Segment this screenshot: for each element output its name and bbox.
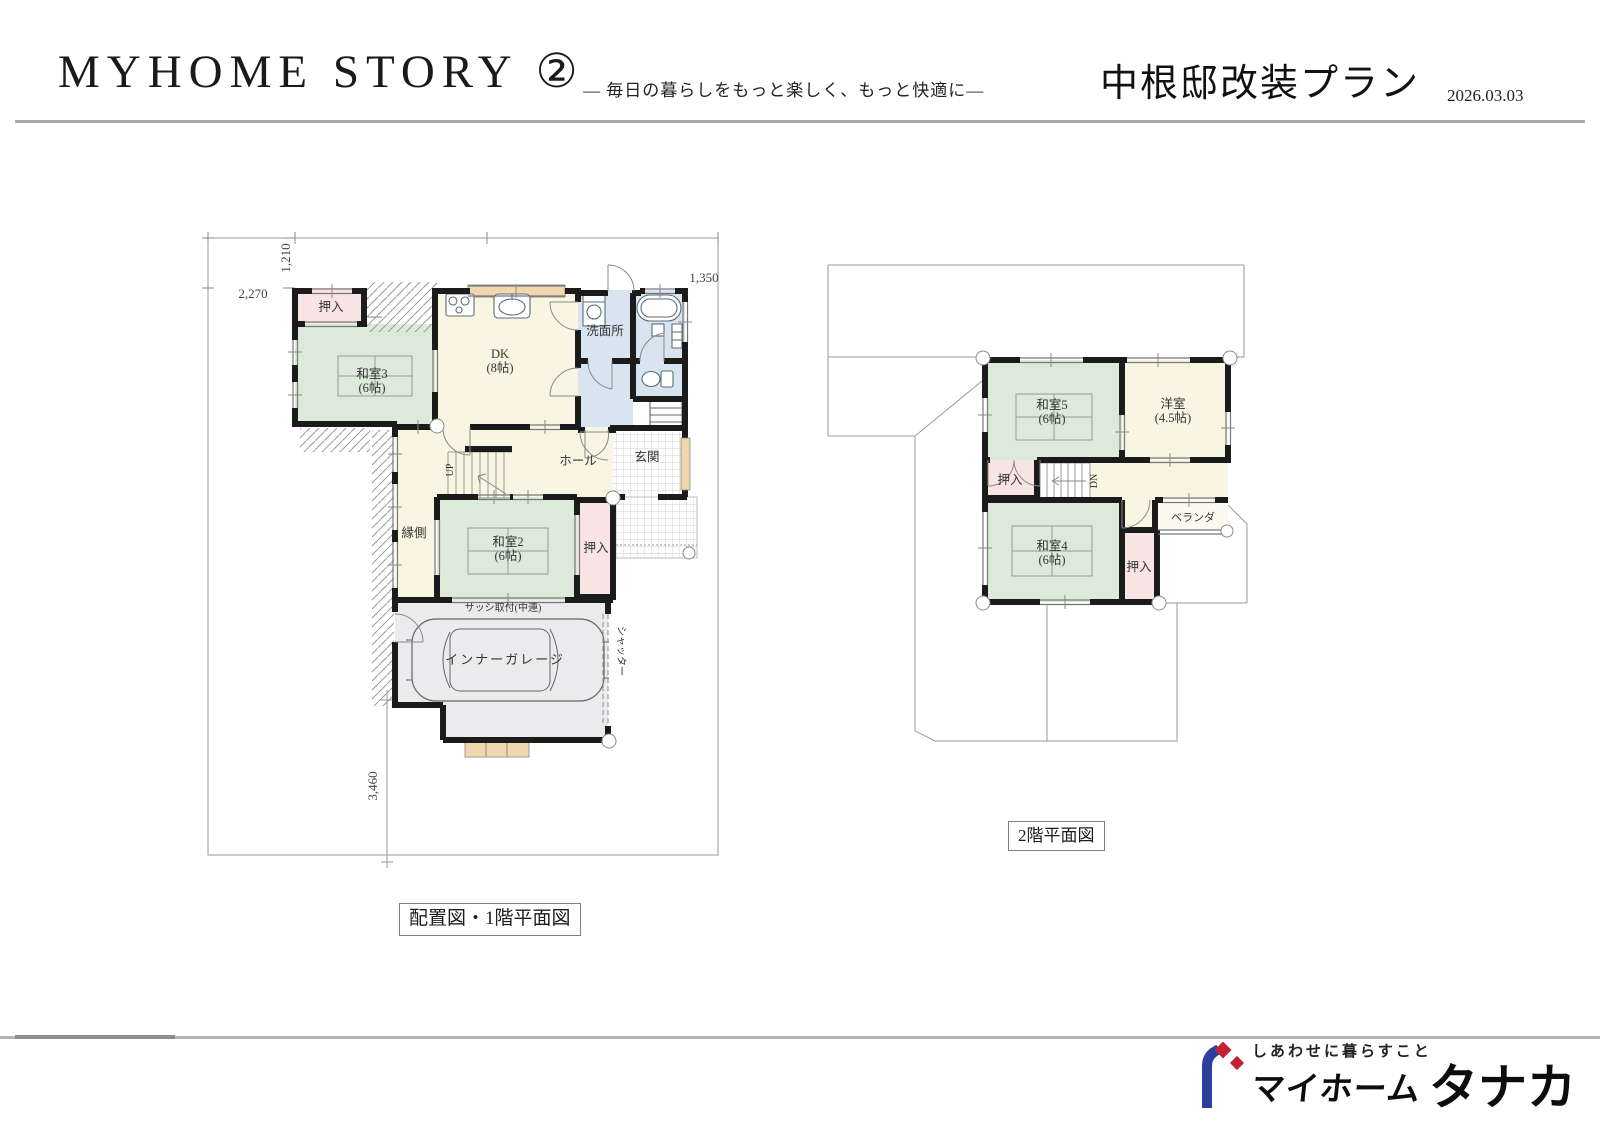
logo-red-diamond-1 (1215, 1042, 1232, 1058)
label-yoshitsu-size: (4.5帖) (1155, 410, 1191, 425)
label-genkan: 玄関 (634, 449, 659, 464)
brand-myhome: マイホーム (1249, 1062, 1423, 1110)
company-logo: しあわせに暮らすこと マイホーム タナカ (1252, 1040, 1576, 1110)
genkan-porch (616, 497, 697, 559)
washer-icon (583, 294, 605, 326)
dim-1350: 1,350 (689, 270, 718, 285)
brand-tanaka: タナカ (1429, 1066, 1576, 1110)
label-yoshitsu: 洋室 (1160, 396, 1185, 411)
floor2-plan: 和室5 (6帖) 洋室 (4.5帖) 押入 DN ベランダ 和室4 (6帖) 押… (828, 265, 1247, 741)
label-senmenjo: 洗面所 (586, 324, 624, 338)
label-veranda: ベランダ (1171, 510, 1215, 524)
label-washitsu5: 和室5 (1036, 397, 1067, 412)
floor2-caption: 2階平面図 (1008, 821, 1105, 851)
label-hall: ホール (559, 454, 597, 468)
label-washitsu4-size: (6帖) (1038, 552, 1065, 567)
logo-blue-stroke (1207, 1049, 1219, 1108)
footer-divider (0, 1036, 1600, 1039)
label-shutter: シャッター (615, 626, 627, 676)
front-door (681, 438, 690, 490)
label-washitsu3-size: (6帖) (358, 380, 385, 395)
floor-plans-canvas: 押入 和室3 (6帖) DK (8帖) 洗面所 ホール 玄関 縁側 和室2 (6… (0, 0, 1600, 1131)
logo-red-diamond-2 (1230, 1056, 1244, 1070)
footer-divider-accent (15, 1035, 175, 1039)
label-washitsu3: 和室3 (356, 366, 387, 381)
label-dn: DN (1089, 474, 1100, 488)
dim-2270: 2,270 (238, 286, 267, 301)
genkan-tile (613, 432, 685, 497)
label-oshiire4: 押入 (1126, 560, 1152, 574)
dim-1210: 1,210 (278, 243, 293, 272)
label-dk: DK (491, 347, 509, 361)
company-logo-mark (1195, 1042, 1251, 1110)
stove-icon (446, 294, 474, 316)
label-washitsu4: 和室4 (1036, 538, 1068, 553)
label-dk-size: (8帖) (486, 360, 513, 375)
toilet-icon (642, 371, 673, 387)
label-engawa: 縁側 (401, 525, 426, 540)
floor1-plan: 押入 和室3 (6帖) DK (8帖) 洗面所 ホール 玄関 縁側 和室2 (6… (202, 232, 719, 868)
room-engawa (395, 427, 435, 603)
label-oshiire3: 押入 (318, 300, 344, 314)
label-washitsu2: 和室2 (492, 534, 523, 549)
room-corridor (578, 361, 633, 430)
label-garage: インナーガレージ (445, 652, 565, 667)
label-washitsu5-size: (6帖) (1038, 411, 1065, 426)
label-up: UP (445, 463, 456, 476)
label-oshiire5: 押入 (997, 473, 1023, 487)
dim-3460: 3,460 (365, 771, 380, 800)
floor1-caption: 配置図・1階平面図 (399, 903, 581, 936)
label-oshiire2: 押入 (583, 541, 609, 555)
label-sash-note: サッシ取付(中連) (465, 601, 542, 614)
shoe-cabinet-icon (650, 401, 682, 428)
label-washitsu2-size: (6帖) (494, 548, 521, 563)
logo-tagline: しあわせに暮らすこと (1252, 1040, 1576, 1061)
sink-icon (494, 294, 530, 318)
